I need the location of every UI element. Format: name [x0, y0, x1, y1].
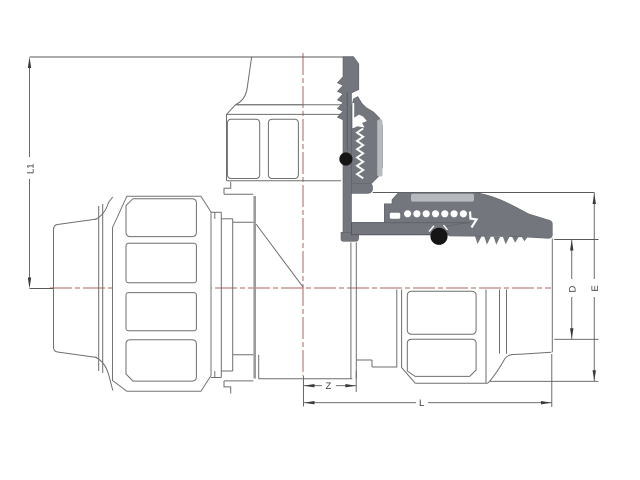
svg-text:L1: L1	[26, 163, 37, 174]
svg-text:D: D	[568, 286, 579, 293]
svg-text:Z: Z	[326, 381, 332, 392]
svg-text:E: E	[590, 285, 601, 291]
svg-text:L: L	[419, 398, 424, 409]
